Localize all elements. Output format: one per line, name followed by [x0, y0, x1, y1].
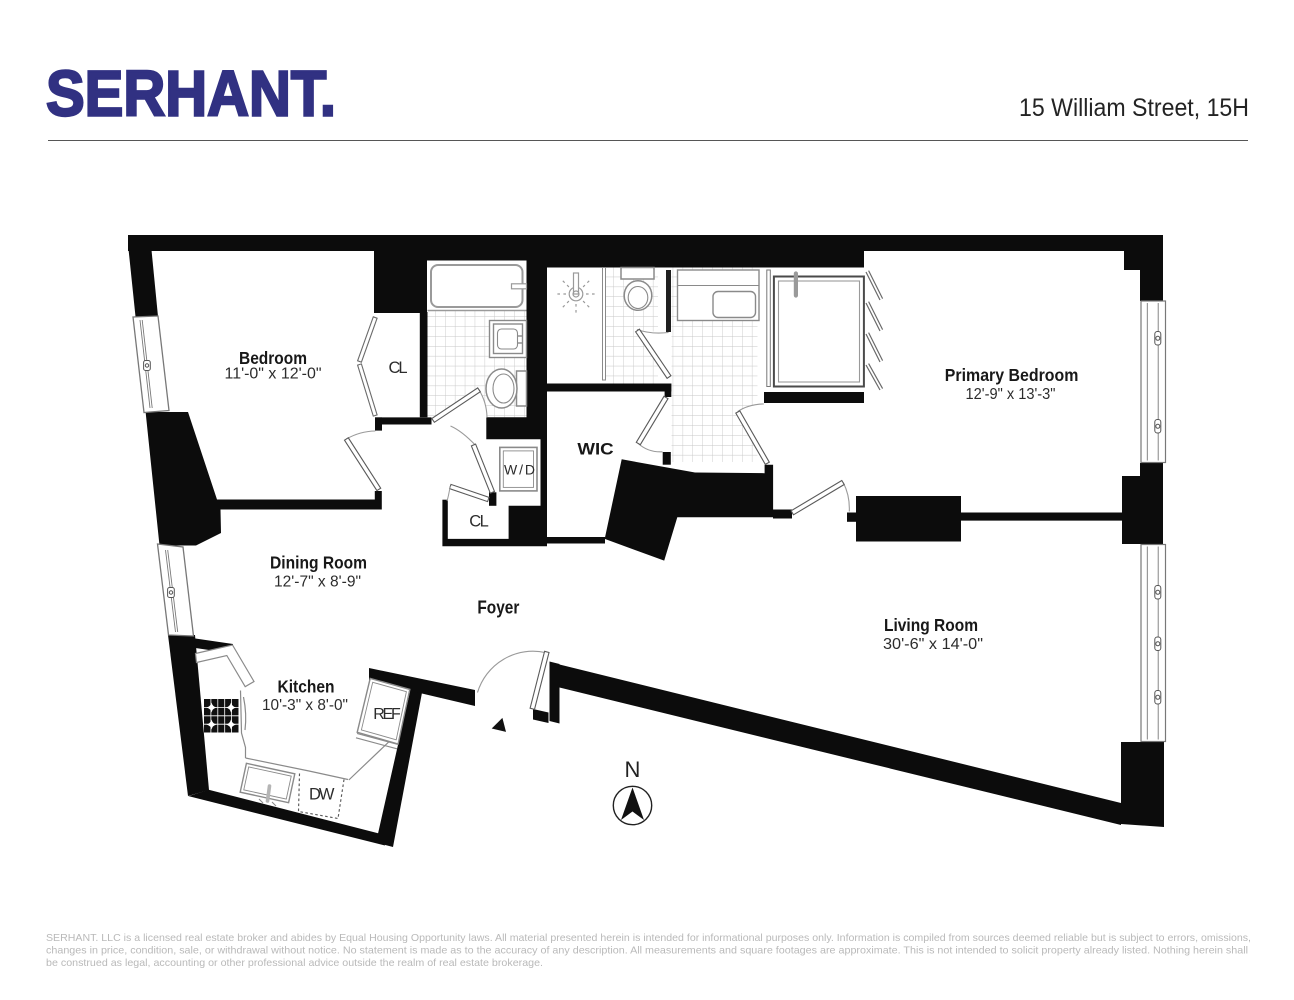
svg-text:10'-3" x 8'-0": 10'-3" x 8'-0" [262, 697, 348, 714]
svg-text:CL: CL [469, 513, 489, 531]
svg-text:W/D: W/D [504, 462, 535, 478]
svg-text:Kitchen: Kitchen [278, 677, 335, 697]
svg-text:SERHANT.: SERHANT. [46, 58, 336, 130]
svg-text:CL: CL [389, 359, 408, 377]
svg-text:12'-9" x 13'-3": 12'-9" x 13'-3" [966, 386, 1056, 403]
svg-text:WIC: WIC [577, 441, 613, 459]
svg-text:Primary Bedroom: Primary Bedroom [945, 365, 1079, 385]
svg-text:REF: REF [373, 706, 401, 723]
svg-text:12'-7" x 8'-9": 12'-7" x 8'-9" [274, 574, 361, 591]
svg-text:SERHANT. LLC is a licensed rea: SERHANT. LLC is a licensed real estate b… [46, 932, 1251, 944]
svg-text:be construed as legal, account: be construed as legal, accounting or oth… [46, 957, 543, 969]
svg-text:DW: DW [309, 786, 335, 804]
svg-text:changes in price, condition, s: changes in price, condition, sale, or wi… [46, 945, 1248, 957]
svg-text:Living Room: Living Room [884, 615, 978, 635]
svg-text:11'-0" x 12'-0": 11'-0" x 12'-0" [225, 366, 322, 383]
svg-text:N: N [625, 757, 641, 782]
svg-text:30'-6" x 14'-0": 30'-6" x 14'-0" [883, 636, 983, 653]
svg-text:15 William Street, 15H: 15 William Street, 15H [1019, 94, 1249, 122]
svg-text:Dining Room: Dining Room [270, 553, 367, 573]
svg-text:Foyer: Foyer [477, 598, 519, 618]
